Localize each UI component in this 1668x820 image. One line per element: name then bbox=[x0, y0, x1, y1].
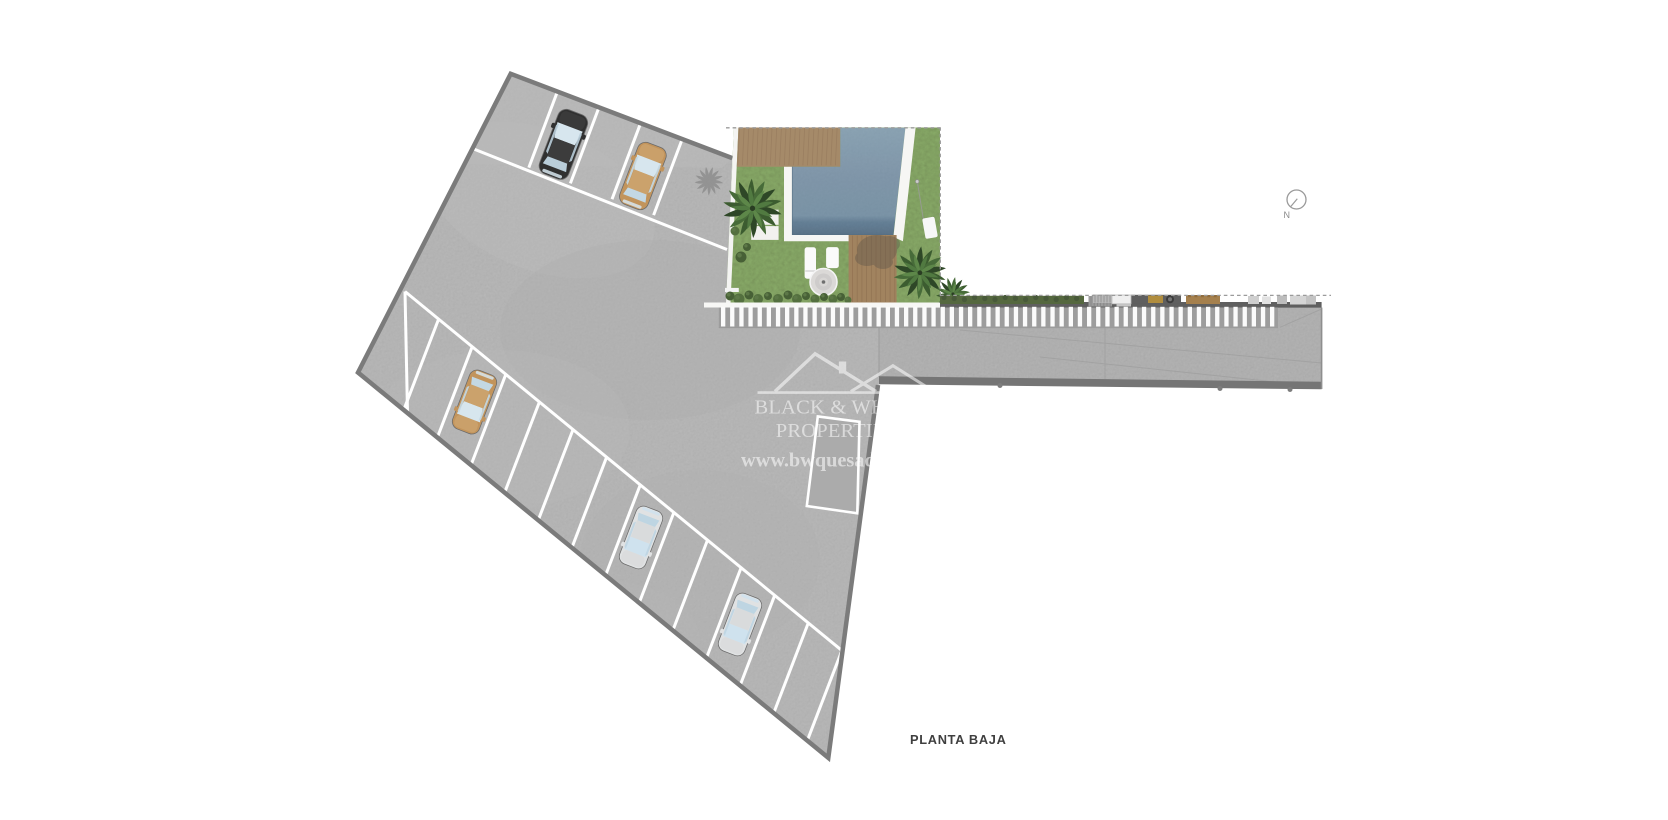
svg-text:PLANTA BAJA: PLANTA BAJA bbox=[910, 732, 1007, 747]
svg-text:PROPERTIES: PROPERTIES bbox=[776, 420, 898, 442]
svg-text:N: N bbox=[1284, 210, 1291, 220]
svg-text:BLACK & WHITE: BLACK & WHITE bbox=[755, 397, 919, 419]
svg-text:www.bwquesada.com: www.bwquesada.com bbox=[741, 450, 927, 472]
